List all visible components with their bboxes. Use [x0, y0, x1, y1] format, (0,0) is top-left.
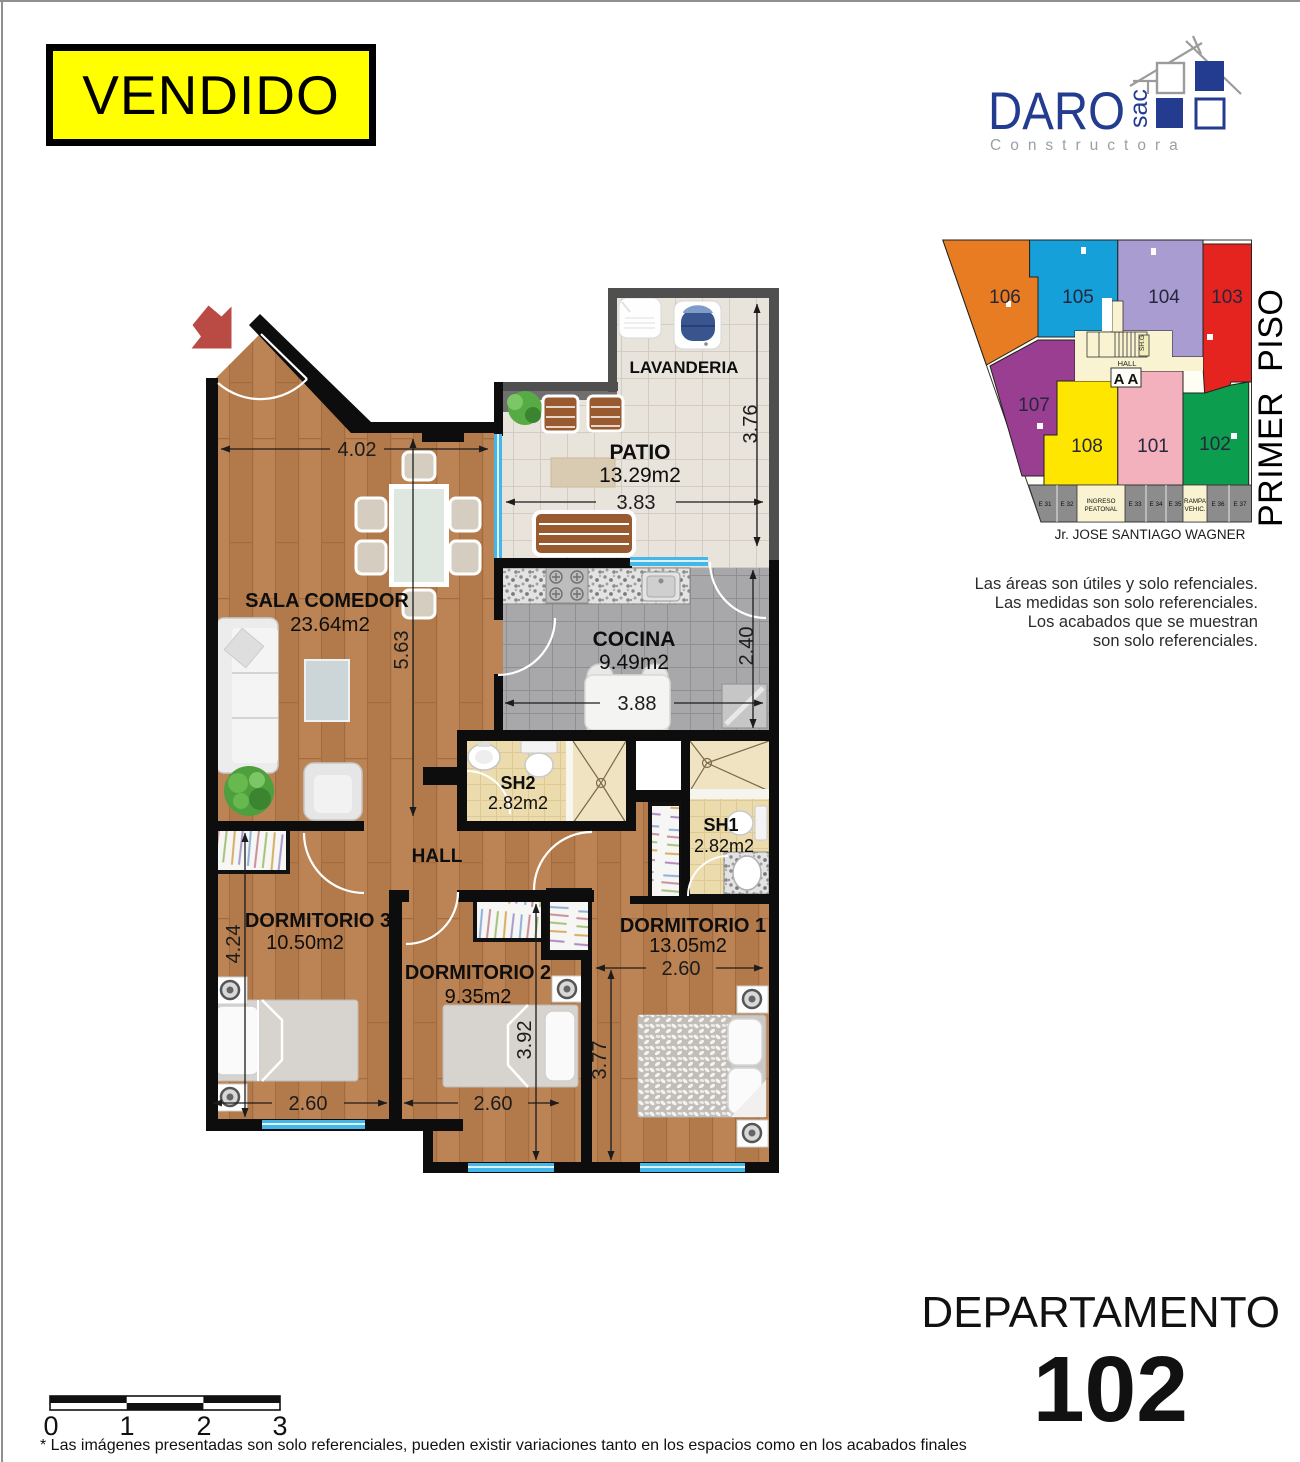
svg-text:RAMPA: RAMPA — [1184, 498, 1207, 505]
svg-text:COCINA: COCINA — [593, 628, 676, 651]
svg-text:E 31: E 31 — [1039, 501, 1052, 508]
svg-text:LAVANDERIA: LAVANDERIA — [630, 358, 739, 377]
svg-text:INGRESO: INGRESO — [1086, 498, 1115, 505]
svg-text:PATIO: PATIO — [609, 441, 670, 464]
svg-text:4.02: 4.02 — [338, 439, 377, 461]
svg-text:103: 103 — [1211, 287, 1243, 308]
svg-text:3.92: 3.92 — [514, 1021, 536, 1060]
svg-text:105: 105 — [1062, 287, 1094, 308]
svg-text:10.50m2: 10.50m2 — [266, 932, 344, 954]
svg-text:E 35: E 35 — [1169, 501, 1182, 508]
svg-text:13.29m2: 13.29m2 — [599, 464, 681, 487]
svg-text:E 34: E 34 — [1150, 501, 1163, 508]
svg-text:107: 107 — [1018, 395, 1050, 416]
svg-text:DORMITORIO 1: DORMITORIO 1 — [620, 915, 766, 937]
svg-text:SH1: SH1 — [703, 815, 738, 835]
svg-text:HALL: HALL — [1118, 359, 1137, 368]
svg-text:9.35m2: 9.35m2 — [445, 986, 512, 1008]
svg-text:3.88: 3.88 — [618, 693, 657, 715]
svg-text:3.76: 3.76 — [740, 405, 762, 444]
svg-text:3.83: 3.83 — [617, 492, 656, 514]
svg-text:E 33: E 33 — [1129, 501, 1142, 508]
svg-text:2.60: 2.60 — [662, 958, 701, 980]
svg-text:E 32: E 32 — [1061, 501, 1074, 508]
svg-text:SH.G: SH.G — [1139, 335, 1146, 351]
svg-text:E 37: E 37 — [1234, 501, 1247, 508]
svg-text:13.05m2: 13.05m2 — [649, 935, 727, 957]
svg-text:SH2: SH2 — [500, 773, 535, 793]
svg-text:SALA COMEDOR: SALA COMEDOR — [245, 590, 409, 612]
svg-text:2.82m2: 2.82m2 — [694, 836, 754, 856]
svg-text:104: 104 — [1148, 287, 1180, 308]
svg-text:4.24: 4.24 — [223, 925, 245, 964]
svg-text:sac: sac — [1125, 89, 1153, 128]
svg-text:108: 108 — [1071, 436, 1103, 457]
svg-text:2.60: 2.60 — [289, 1093, 328, 1115]
svg-text:5.63: 5.63 — [391, 631, 413, 670]
svg-text:3.77: 3.77 — [589, 1041, 611, 1080]
svg-text:DARO: DARO — [988, 82, 1125, 141]
svg-text:2.40: 2.40 — [736, 627, 758, 666]
svg-text:DORMITORIO 3: DORMITORIO 3 — [245, 910, 391, 932]
svg-text:DORMITORIO 2: DORMITORIO 2 — [405, 962, 551, 984]
svg-text:106: 106 — [989, 287, 1021, 308]
svg-text:9.49m2: 9.49m2 — [599, 651, 669, 674]
svg-text:E 36: E 36 — [1212, 501, 1225, 508]
svg-text:VEHIC.: VEHIC. — [1185, 506, 1206, 513]
svg-text:Constructora: Constructora — [990, 137, 1187, 154]
svg-text:102: 102 — [1199, 434, 1231, 455]
svg-text:23.64m2: 23.64m2 — [290, 613, 370, 636]
svg-text:101: 101 — [1137, 436, 1169, 457]
svg-text:2.60: 2.60 — [474, 1093, 513, 1115]
svg-text:PEATONAL: PEATONAL — [1084, 506, 1118, 513]
svg-text:2.82m2: 2.82m2 — [488, 793, 548, 813]
svg-text:A A: A A — [1114, 371, 1139, 388]
svg-text:HALL: HALL — [412, 846, 463, 867]
